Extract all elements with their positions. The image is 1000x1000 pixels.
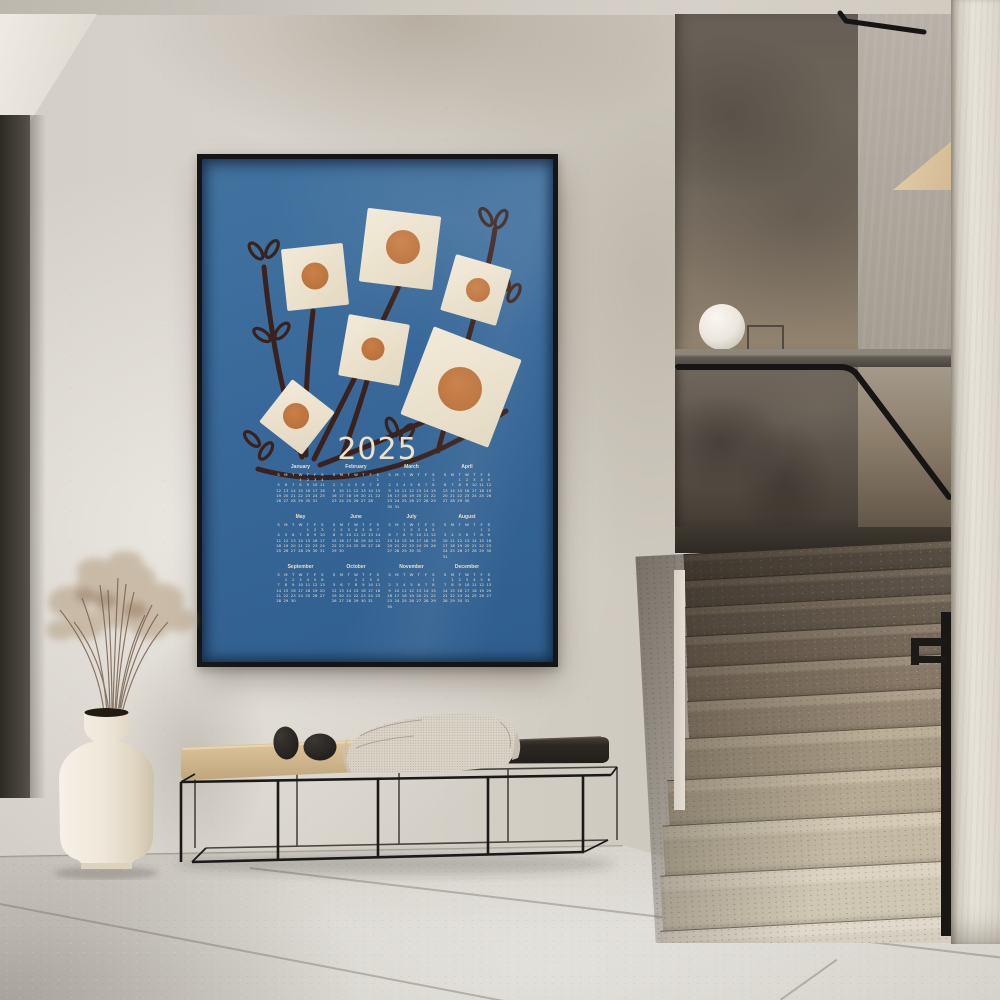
interior-scene: 2025 JanuarySMTWTFS123456789101112131415…: [0, 0, 1000, 1000]
door-frame: [0, 115, 30, 798]
white-column: [951, 0, 1000, 944]
vase-foot: [81, 863, 132, 869]
poster-frame: 2025 JanuarySMTWTFS123456789101112131415…: [197, 154, 558, 667]
stairwell-side-wall-lower: [858, 352, 953, 548]
landing-ledge: [675, 349, 958, 367]
stairwell-back-wall: [675, 14, 858, 352]
sphere-lamp: [699, 304, 745, 350]
bench-group: [160, 698, 630, 883]
ceiling: [0, 0, 1000, 15]
handrail-bracket: [911, 638, 919, 665]
glass-reflection: [202, 159, 553, 662]
blanket: [343, 714, 520, 773]
stair-side-wall-edge: [674, 570, 685, 810]
vase: [59, 708, 154, 869]
decor-stone: [304, 734, 337, 761]
handrail-bracket: [919, 656, 947, 663]
dried-grass: [46, 551, 196, 713]
smoked-glass-balustrade: [675, 367, 858, 533]
vase-mouth: [85, 708, 129, 717]
calendar-poster: 2025 JanuarySMTWTFS123456789101112131415…: [202, 159, 553, 662]
